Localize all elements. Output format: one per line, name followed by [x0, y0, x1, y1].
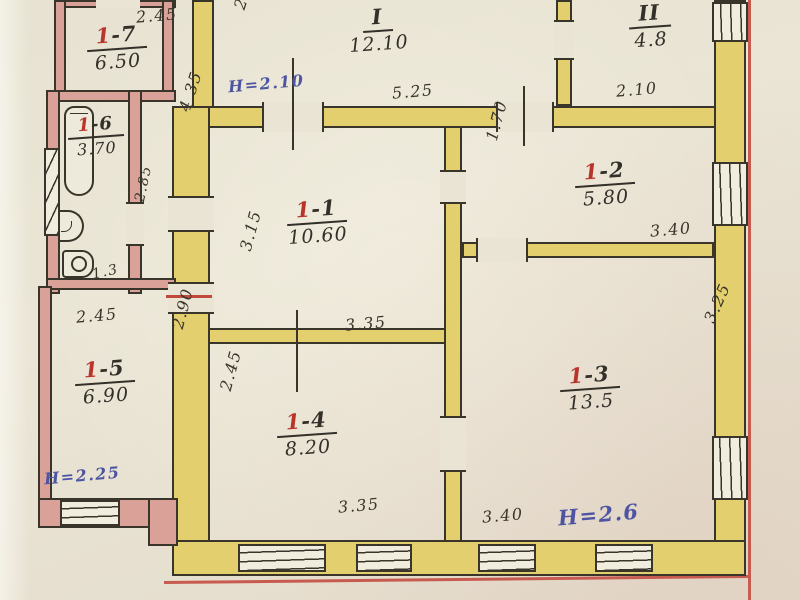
door-room1-room2	[440, 170, 466, 204]
door-tick	[296, 310, 298, 392]
dim-3.35-bottom: 3.35	[337, 494, 380, 517]
window-verandaII-right	[712, 2, 748, 42]
wall-room7-left	[54, 0, 66, 98]
room-label-1-1: 1-1 10.60	[270, 193, 363, 250]
window-room3-right	[712, 436, 748, 500]
room-label-1-5: 1-5 6.90	[58, 353, 151, 410]
window-bottom-2	[356, 544, 412, 572]
room-label-1-2: 1-2 5.80	[558, 155, 651, 212]
window-bottom-1	[238, 544, 326, 572]
door-verandaI-II	[554, 20, 574, 60]
door-column-upper	[168, 196, 214, 232]
door-room7-top	[96, 0, 140, 8]
dim-2.3-vert: 2.3	[230, 0, 257, 12]
window-room5-bottom	[60, 500, 120, 526]
wall-corner-block	[148, 498, 178, 546]
room-label-1-7: 1-7 6.50	[70, 19, 163, 76]
dim-3.35-mid: 3.35	[344, 312, 387, 335]
room-label-1-4: 1-4 8.20	[260, 405, 353, 462]
dim-2.10: 2.10	[615, 78, 658, 101]
window-bottom-4	[595, 544, 653, 572]
sink-icon	[60, 210, 84, 242]
dim-3.15-vert: 3.15	[236, 208, 265, 253]
dim-5.25: 5.25	[391, 80, 434, 103]
height-label-2.6: H=2.6	[557, 498, 640, 530]
wall-bath-bottom	[46, 278, 176, 290]
wall-room5-left	[38, 286, 52, 528]
frame-line-bottom	[164, 575, 748, 584]
window-bath-left	[44, 148, 60, 236]
door-room2-room3	[476, 238, 528, 262]
frame-line-right	[748, 0, 751, 600]
dim-2.45-room5: 2.45	[75, 304, 118, 327]
room-label-II: II 4.8	[603, 0, 696, 54]
window-bottom-3	[478, 544, 536, 572]
floor-plan-scan: I 12.10 II 4.8 1-1 10.60 1-2 5.80 1-3 13…	[0, 0, 800, 600]
wall-bath-top	[46, 90, 176, 102]
height-label-2.25: H=2.25	[43, 463, 121, 489]
room-label-1-6: 1-6 3.70	[55, 111, 138, 160]
door-tick	[523, 86, 525, 146]
dim-2.45-vert-room4: 2.45	[216, 348, 245, 393]
dim-3.40-bottom: 3.40	[481, 504, 524, 527]
toilet-icon	[62, 250, 94, 278]
room-label-1-3: 1-3 13.5	[543, 359, 636, 416]
door-room4-room3	[440, 416, 466, 472]
dim-3.40-room2: 3.40	[649, 218, 692, 241]
dim-2.45-top: 2.45	[135, 4, 178, 27]
door-bathroom	[126, 202, 144, 246]
window-room2-right	[712, 162, 748, 226]
wall-room1-room4	[208, 328, 446, 344]
room-label-I: I 12.10	[331, 1, 424, 58]
